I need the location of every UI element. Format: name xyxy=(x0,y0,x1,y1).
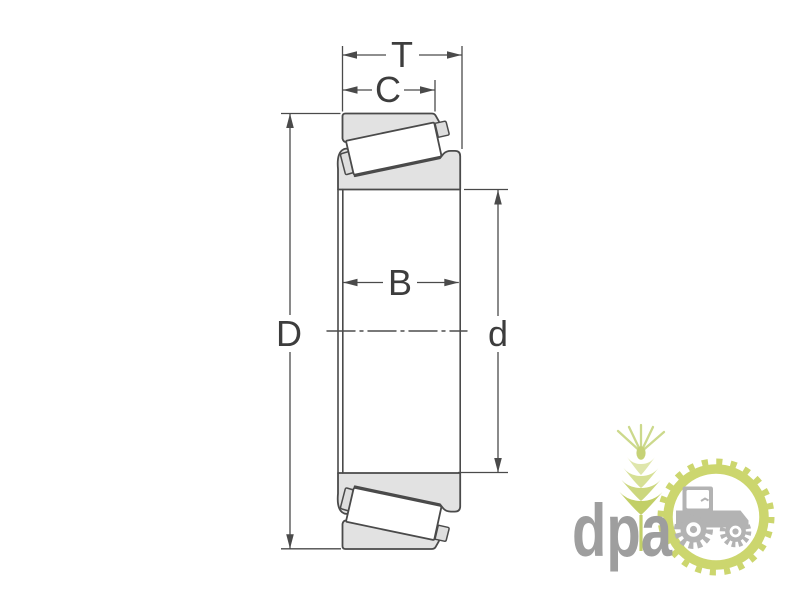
dimension-d: d xyxy=(488,190,508,473)
bearing-diagram xyxy=(327,114,467,550)
dimension-label-B: B xyxy=(388,262,412,303)
tractor-icon xyxy=(676,487,749,546)
dimension-label-d: d xyxy=(488,313,508,354)
dimension-D: D xyxy=(276,114,302,549)
bearing-dimension-diagram-page: dpa xyxy=(0,0,800,600)
dimensions: T C B D xyxy=(276,34,508,549)
dimension-T: T xyxy=(343,34,462,75)
brand-text: dpa xyxy=(572,489,673,572)
dimension-B: B xyxy=(343,262,459,303)
dimension-label-C: C xyxy=(375,69,401,110)
watermark-logo: dpa xyxy=(572,425,772,573)
dimension-label-D: D xyxy=(276,313,302,354)
dimension-C: C xyxy=(343,69,435,110)
bearing-bottom-half xyxy=(338,473,460,549)
bearing-cross-section-svg: dpa xyxy=(0,0,800,600)
bearing-top-half xyxy=(338,114,460,190)
